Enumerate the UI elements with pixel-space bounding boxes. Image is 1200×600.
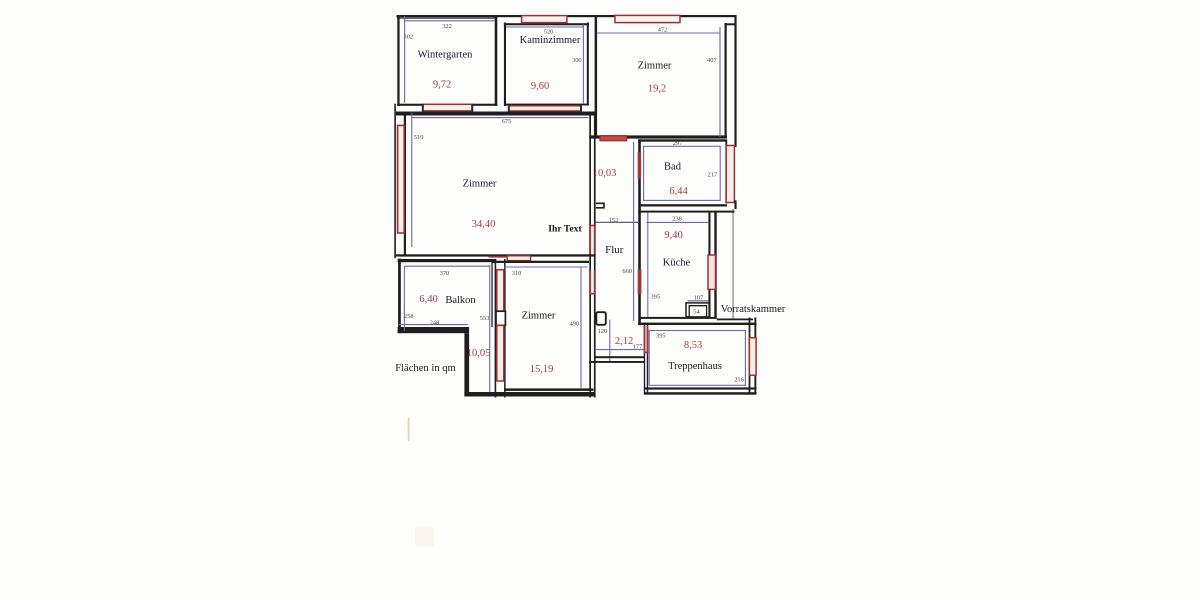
svg-text:395: 395 (656, 332, 666, 339)
svg-text:217: 217 (708, 172, 718, 179)
svg-text:Wintergarten: Wintergarten (418, 50, 474, 61)
svg-text:8,53: 8,53 (684, 340, 702, 351)
svg-text:407: 407 (707, 57, 717, 64)
svg-text:54: 54 (693, 309, 700, 316)
svg-text:6,44: 6,44 (669, 186, 688, 197)
svg-text:258: 258 (404, 313, 414, 320)
svg-text:660: 660 (622, 268, 632, 275)
svg-text:Balkon: Balkon (445, 295, 476, 306)
svg-text:Treppenhaus: Treppenhaus (668, 361, 722, 372)
svg-text:177: 177 (633, 343, 643, 350)
svg-text:238: 238 (672, 215, 682, 222)
svg-text:395: 395 (651, 294, 661, 301)
svg-text:370: 370 (440, 270, 450, 277)
svg-text:Küche: Küche (663, 258, 691, 269)
svg-text:Vorratskammer: Vorratskammer (721, 304, 786, 315)
svg-text:490: 490 (570, 321, 580, 328)
svg-text:322: 322 (442, 23, 452, 30)
svg-text:Bad: Bad (664, 162, 682, 173)
svg-text:9,72: 9,72 (433, 80, 451, 91)
svg-text:472: 472 (658, 27, 668, 34)
svg-text:297: 297 (673, 140, 683, 147)
svg-text:15,19: 15,19 (530, 364, 554, 375)
svg-text:6,40: 6,40 (419, 294, 437, 305)
svg-text:10,05: 10,05 (467, 348, 491, 359)
svg-text:Zimmer: Zimmer (463, 179, 497, 190)
svg-text:Flur: Flur (605, 244, 624, 256)
svg-text:Kaminzimmer: Kaminzimmer (520, 35, 581, 46)
svg-text:Zimmer: Zimmer (522, 310, 556, 321)
svg-text:2,12: 2,12 (615, 336, 633, 347)
svg-text:300: 300 (572, 57, 582, 64)
svg-text:553: 553 (480, 315, 490, 322)
svg-text:Zimmer: Zimmer (638, 61, 672, 72)
svg-text:510: 510 (414, 134, 424, 141)
svg-text:10,03: 10,03 (593, 168, 617, 179)
svg-text:248: 248 (430, 320, 440, 327)
svg-text:Ihr Text: Ihr Text (548, 224, 582, 235)
svg-text:9,60: 9,60 (531, 81, 549, 92)
svg-text:Flächen in qm: Flächen in qm (395, 363, 456, 374)
svg-text:675: 675 (502, 118, 512, 125)
svg-text:310: 310 (512, 270, 522, 277)
svg-text:120: 120 (598, 328, 608, 335)
svg-text:302: 302 (404, 33, 414, 40)
svg-text:152: 152 (609, 217, 619, 224)
svg-text:34,40: 34,40 (472, 219, 496, 230)
svg-text:19,2: 19,2 (648, 84, 666, 95)
svg-text:216: 216 (734, 377, 744, 384)
svg-text:9,40: 9,40 (664, 230, 682, 241)
